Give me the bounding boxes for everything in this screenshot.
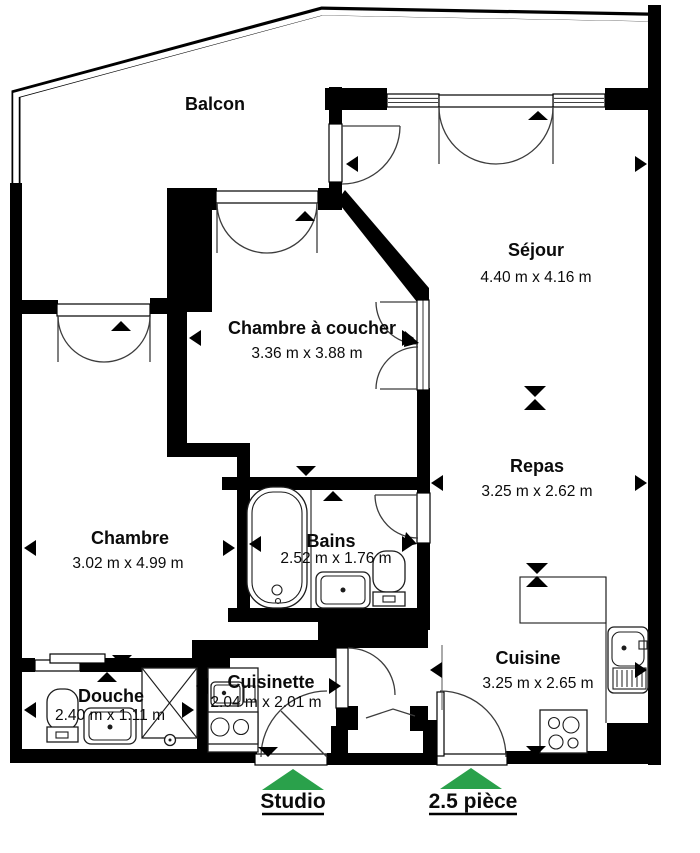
door-arc [496, 107, 553, 164]
apartment-entrance-label: 2.5 pièce [429, 790, 518, 813]
door-arc [217, 203, 267, 253]
room-label-balcon: Balcon [185, 94, 245, 114]
door-arc [376, 347, 418, 389]
sliding-door-panel [50, 654, 105, 663]
room-label-cuisine: Cuisine [495, 648, 560, 668]
room-dims-sejour: 4.40 m x 4.16 m [480, 269, 591, 286]
room-dims-cuisinette: 2.04 m x 2.01 m [210, 694, 321, 711]
room-dims-cuisine: 3.25 m x 2.65 m [482, 675, 593, 692]
apartment-entrance-threshold [437, 754, 507, 765]
stove [540, 710, 587, 753]
stove [208, 712, 258, 744]
door-arc [440, 691, 506, 757]
toilet-tank [373, 592, 405, 606]
door-frame [336, 648, 348, 708]
entrance-markers: Studio 2.5 pièce [260, 768, 517, 814]
window [553, 94, 605, 107]
studio-entrance-label: Studio [260, 790, 325, 813]
door-threshold [216, 191, 318, 203]
door-arc [342, 126, 400, 184]
door-threshold [57, 304, 150, 316]
room-dims-bains: 2.52 m x 1.76 m [280, 550, 391, 567]
door-threshold [439, 95, 553, 107]
folding-closet-door [366, 709, 415, 718]
floor-plan-page: Balcon Séjour 4.40 m x 4.16 m Chambre à … [0, 0, 700, 853]
door-leaf [437, 692, 444, 756]
room-dims-chambre-a-coucher: 3.36 m x 3.88 m [251, 345, 362, 362]
door-leaf [281, 711, 327, 757]
door-opening [329, 124, 342, 182]
door-frame [417, 493, 430, 543]
room-label-bains: Bains [306, 531, 355, 551]
room-label-repas: Repas [510, 456, 564, 476]
door-arc [58, 316, 104, 362]
room-dims-repas: 3.25 m x 2.62 m [481, 483, 592, 500]
room-dims-douche: 2.40 m x 1.11 m [55, 707, 165, 724]
room-dims-chambre: 3.02 m x 4.99 m [72, 555, 183, 572]
door-arc [439, 107, 496, 164]
door-arc [348, 648, 395, 695]
studio-entrance-arrow-icon [262, 769, 324, 790]
floor-plan: Balcon Séjour 4.40 m x 4.16 m Chambre à … [0, 0, 700, 853]
studio-entrance-threshold [255, 754, 327, 765]
room-label-chambre: Chambre [91, 528, 169, 548]
room-label-douche: Douche [78, 686, 144, 706]
toilet-tank [47, 727, 78, 742]
door-arc [375, 495, 418, 538]
diagonal-wall [337, 190, 429, 302]
door-arc [104, 316, 150, 362]
room-label-sejour: Séjour [508, 240, 564, 260]
door-arc [267, 203, 317, 253]
room-label-cuisinette: Cuisinette [227, 672, 314, 692]
window [387, 94, 439, 107]
apartment-entrance-arrow-icon [440, 768, 502, 789]
room-label-chambre-a-coucher: Chambre à coucher [228, 318, 396, 338]
